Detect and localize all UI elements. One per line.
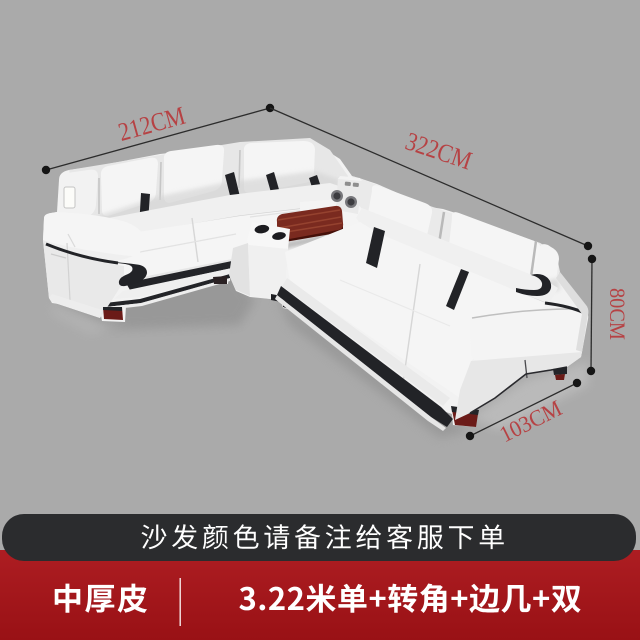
svg-text:80CM: 80CM [605,288,630,340]
